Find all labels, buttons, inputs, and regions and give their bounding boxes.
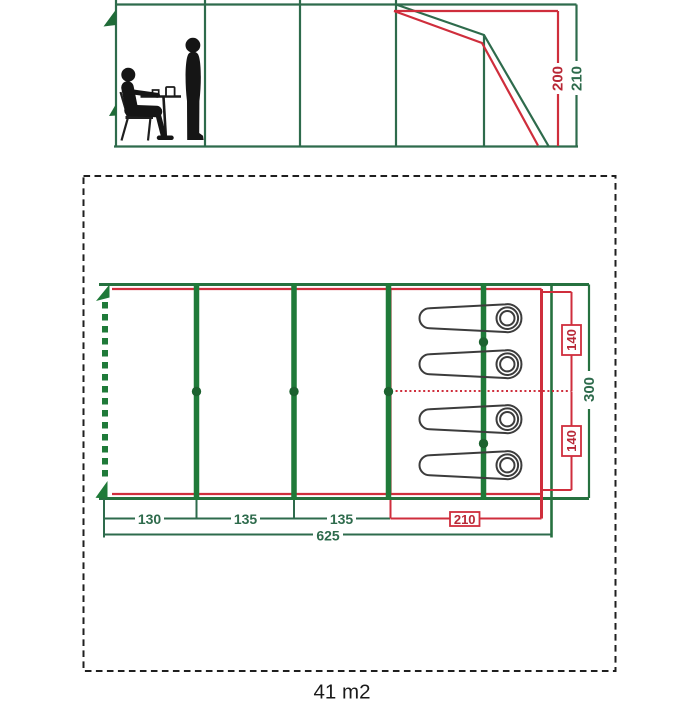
svg-text:135: 135: [330, 511, 354, 527]
svg-text:210: 210: [454, 512, 476, 527]
svg-text:200: 200: [550, 66, 567, 91]
svg-text:130: 130: [138, 511, 162, 527]
svg-text:140: 140: [564, 430, 579, 452]
svg-text:625: 625: [316, 528, 340, 544]
svg-text:140: 140: [564, 329, 579, 351]
svg-text:135: 135: [234, 511, 258, 527]
svg-text:210: 210: [569, 66, 586, 91]
svg-text:300: 300: [581, 377, 598, 402]
svg-text:41 m2: 41 m2: [314, 680, 371, 700]
